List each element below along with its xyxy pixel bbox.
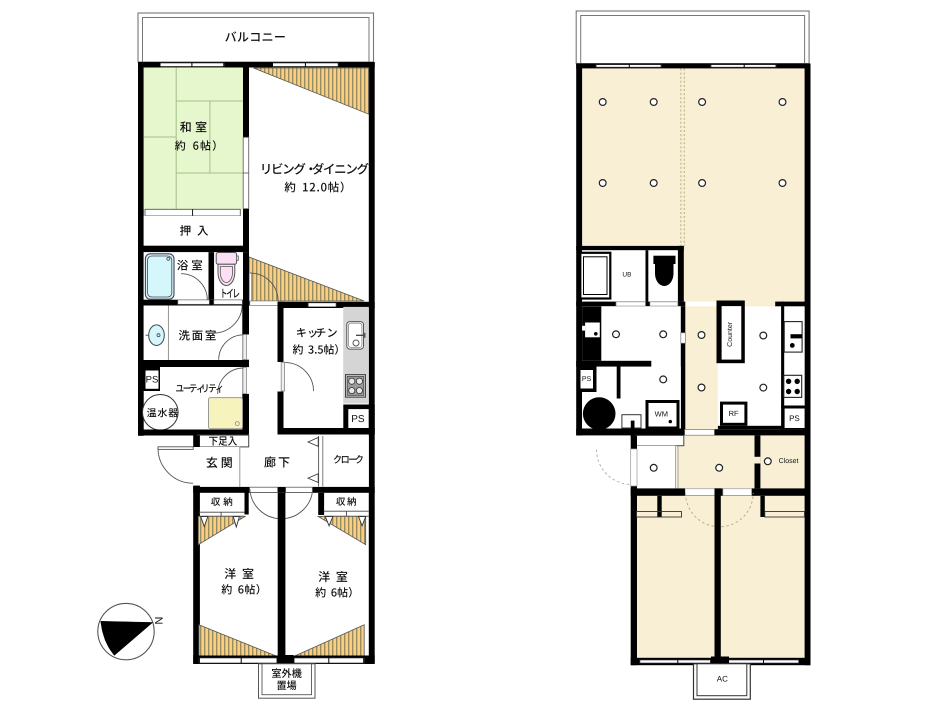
svg-text:N: N [152,617,164,625]
svg-text:RF: RF [729,409,739,418]
svg-text:PS: PS [789,414,800,423]
svg-text:UB: UB [622,272,631,279]
svg-text:WM: WM [655,410,668,419]
svg-text:Counter: Counter [727,321,734,347]
svg-text:PS: PS [582,376,592,383]
svg-text:PS: PS [351,414,365,425]
svg-text:AC: AC [717,675,728,684]
svg-text:Closet: Closet [779,457,799,465]
svg-text:PS: PS [146,374,159,385]
